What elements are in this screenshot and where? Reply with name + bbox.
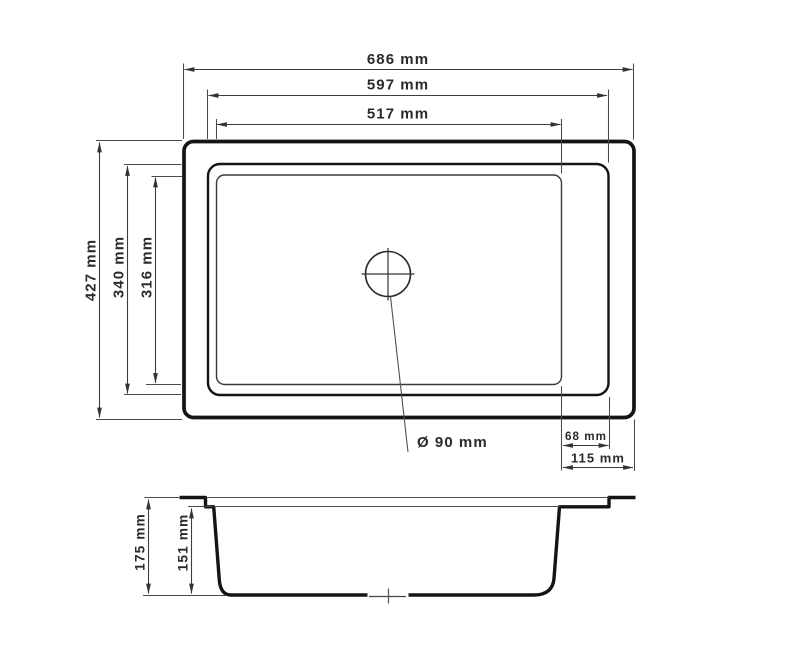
svg-text:115 mm: 115 mm <box>571 451 625 466</box>
svg-text:427 mm: 427 mm <box>83 239 100 301</box>
svg-text:517 mm: 517 mm <box>367 106 429 123</box>
svg-text:68 mm: 68 mm <box>565 430 607 443</box>
svg-text:597 mm: 597 mm <box>367 77 429 94</box>
svg-text:151 mm: 151 mm <box>176 514 191 572</box>
svg-text:316 mm: 316 mm <box>139 236 156 298</box>
svg-text:686 mm: 686 mm <box>367 51 429 68</box>
svg-text:340 mm: 340 mm <box>111 236 128 298</box>
svg-text:Ø 90 mm: Ø 90 mm <box>417 434 488 451</box>
svg-text:175 mm: 175 mm <box>133 513 148 571</box>
